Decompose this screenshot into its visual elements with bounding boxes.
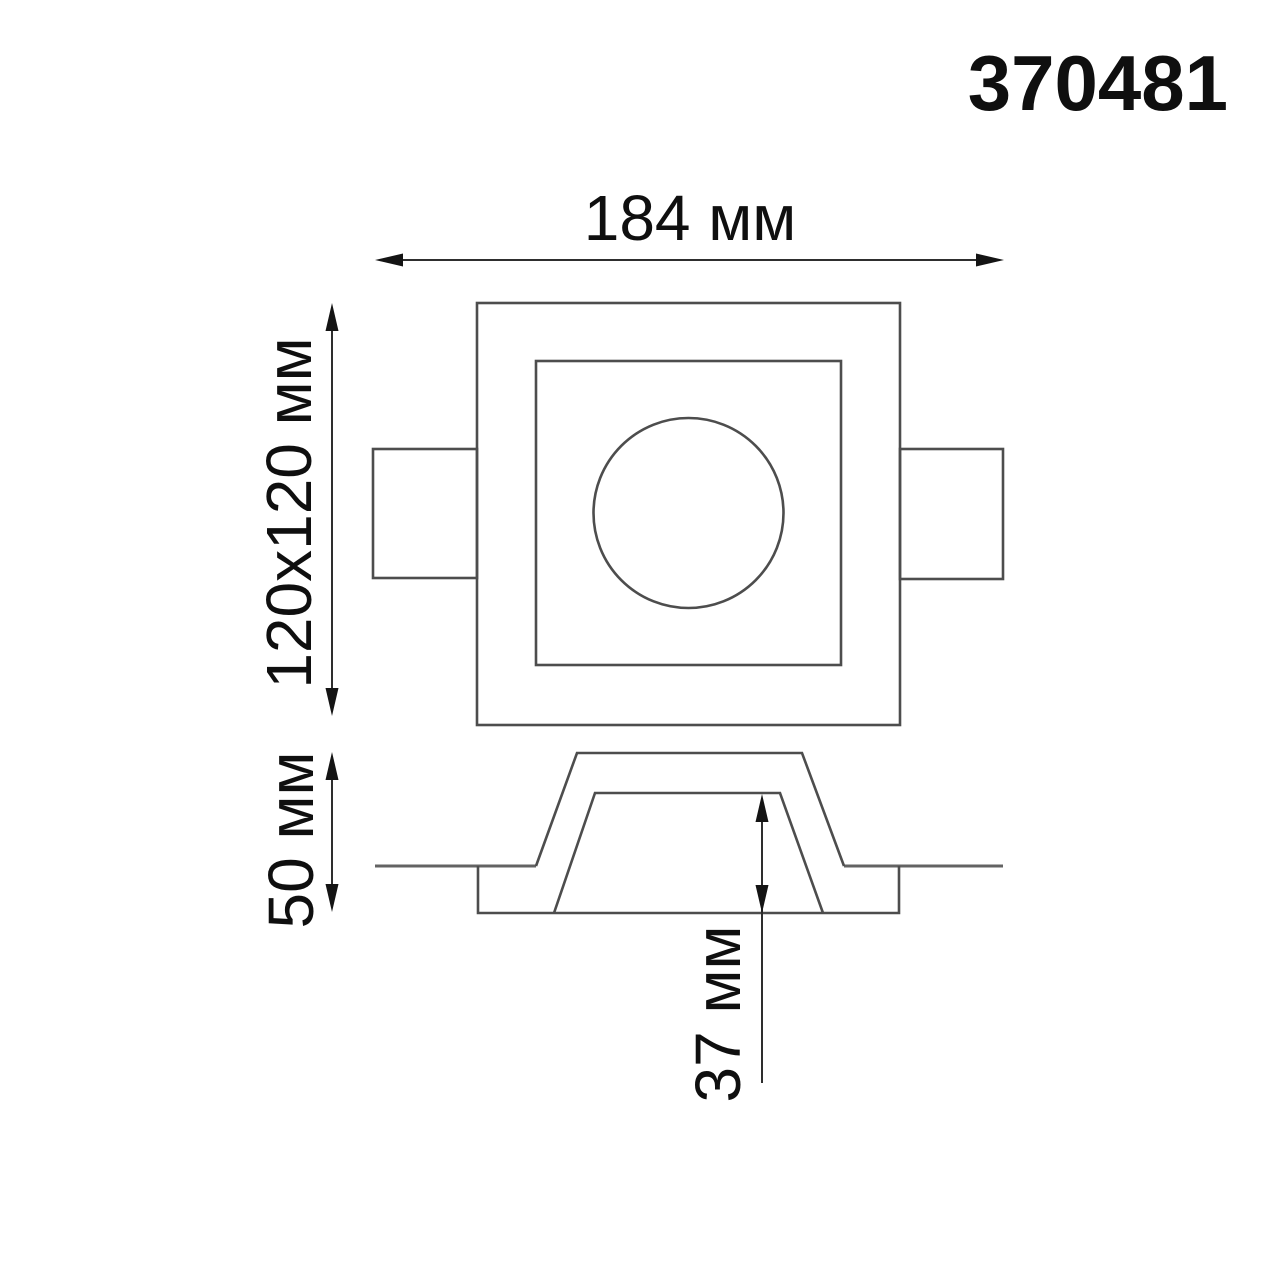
dimension-depth: 37 мм — [682, 794, 769, 1102]
inner-profile — [554, 793, 823, 913]
arrowhead-down — [326, 688, 339, 716]
dimension-depth-label: 37 мм — [682, 926, 754, 1103]
inner-square — [536, 361, 841, 665]
lamp-hole-circle — [594, 418, 784, 608]
arrowhead-left — [375, 254, 403, 267]
arrowhead-up — [756, 794, 769, 822]
right-mounting-tab — [900, 449, 1003, 579]
dimension-height: 50 мм — [255, 752, 339, 929]
arrowhead-down — [326, 884, 339, 912]
top-view — [373, 303, 1003, 725]
left-mounting-tab — [373, 449, 477, 578]
arrowhead-up — [326, 752, 339, 780]
outer-square — [477, 303, 900, 725]
arrowhead-up — [326, 303, 339, 331]
flange-profile — [478, 866, 899, 913]
dimension-height-label: 50 мм — [255, 752, 327, 929]
dimension-face-label: 120x120 мм — [253, 337, 325, 688]
technical-drawing: 370481 184 мм 120 — [0, 0, 1280, 1280]
article-number: 370481 — [968, 39, 1228, 127]
arrowhead-right — [976, 254, 1004, 267]
dimension-width: 184 мм — [375, 182, 1004, 267]
dimension-width-label: 184 мм — [584, 182, 797, 254]
drawing-page: 370481 184 мм 120 — [0, 0, 1280, 1280]
outer-profile — [536, 753, 844, 866]
side-view — [375, 753, 1003, 913]
dimension-face: 120x120 мм — [253, 303, 339, 716]
arrowhead-down — [756, 885, 769, 913]
